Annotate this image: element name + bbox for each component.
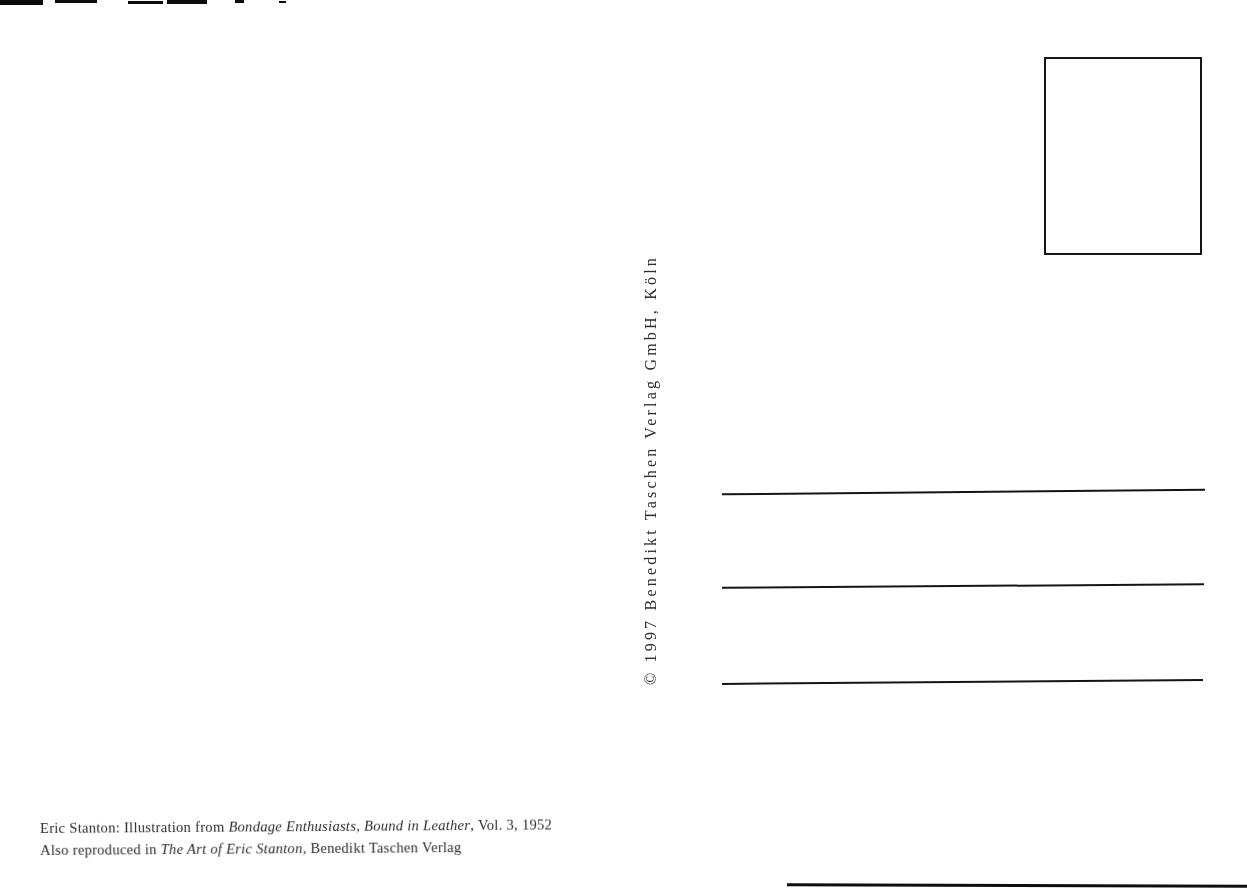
- address-line-2: [722, 583, 1204, 588]
- caption-text: Eric Stanton: Illustration from: [40, 819, 229, 836]
- postcard-back-scan: © 1997 Benedikt Taschen Verlag GmbH, Köl…: [0, 0, 1247, 890]
- scan-artifact-bottom-edge: [787, 883, 1247, 887]
- scan-artifact-top-edge: [235, 0, 244, 3]
- caption-book-title: The Art of Eric Stanton: [161, 840, 303, 857]
- caption-text: Also reproduced in: [40, 841, 161, 858]
- caption-line-1: Eric Stanton: Illustration from Bondage …: [40, 813, 552, 839]
- publisher-copyright-vertical-text: © 1997 Benedikt Taschen Verlag GmbH, Köl…: [642, 250, 664, 690]
- scan-artifact-top-edge: [55, 0, 97, 3]
- stamp-box: [1044, 57, 1202, 255]
- caption: Eric Stanton: Illustration from Bondage …: [40, 813, 552, 861]
- caption-text: , Benedikt Taschen Verlag: [303, 839, 462, 856]
- scan-artifact-top-edge: [167, 0, 207, 4]
- caption-text: , Vol. 3, 1952: [470, 816, 552, 833]
- address-line-1: [722, 489, 1205, 496]
- address-line-3: [722, 679, 1203, 685]
- caption-book-title: Bondage Enthusiasts, Bound in Leather: [228, 817, 470, 835]
- scan-artifact-top-edge: [0, 0, 43, 5]
- scan-artifact-top-edge: [279, 1, 286, 3]
- caption-line-2: Also reproduced in The Art of Eric Stant…: [40, 835, 552, 861]
- scan-artifact-top-edge: [128, 1, 163, 4]
